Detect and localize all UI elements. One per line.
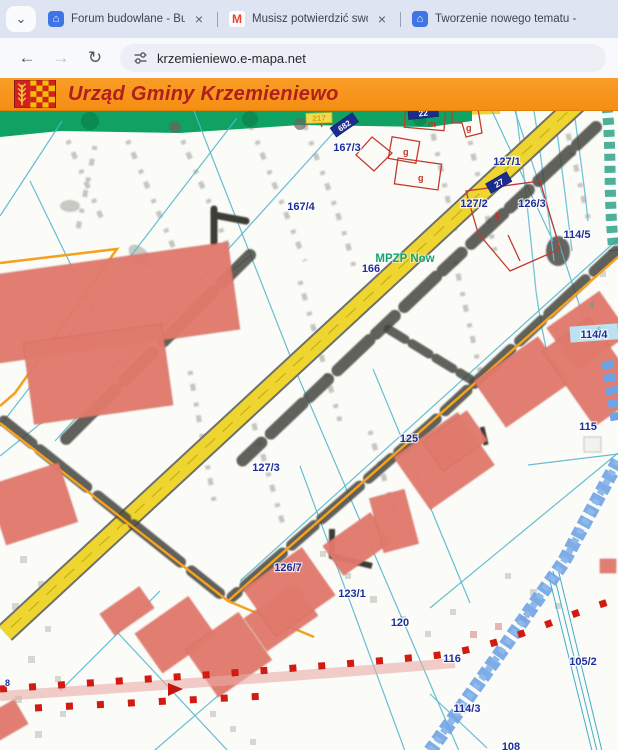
tab-label: Tworzenie nowego tematu -	[435, 13, 612, 25]
parcel-label-114-3: 114/3	[454, 703, 481, 715]
building-letter-m: m	[428, 119, 436, 129]
parcel-label-115: 115	[579, 421, 597, 433]
tab-label: Forum budowlane - Budujemy Dom	[71, 13, 185, 25]
forward-button[interactable]: →	[46, 43, 76, 73]
address-bar[interactable]: krzemieniewo.e-mapa.net	[120, 44, 606, 72]
tree-row-strip	[607, 111, 614, 251]
parcel-label-127-1: 127/1	[493, 156, 521, 168]
home-icon: ⌂	[412, 11, 428, 27]
home-icon: ⌂	[48, 11, 64, 27]
parcel-label-114-5: 114/5	[564, 229, 591, 241]
parcel-label-127-2: 127/2	[460, 198, 488, 210]
cadastral-map[interactable]: m g g g k 22 682 27 217	[0, 111, 618, 750]
tab-gmail-confirm[interactable]: M Musisz potwierdzić swoje konto ×	[223, 0, 395, 38]
tab-label: Musisz potwierdzić swoje konto	[252, 13, 368, 25]
tab-divider	[217, 12, 218, 27]
site-settings-tune-icon[interactable]	[133, 51, 148, 65]
mpzp-plan-label: MPZP Now	[375, 253, 434, 265]
url-text: krzemieniewo.e-mapa.net	[157, 51, 306, 66]
parcel-label-126-3: 126/3	[518, 198, 546, 210]
tab-forum-budowlane[interactable]: ⌂ Forum budowlane - Budujemy Dom ×	[42, 0, 212, 38]
parcel-label-105-2: 105/2	[569, 656, 597, 668]
address-plate-22: 22	[418, 111, 429, 118]
tab-new-topic[interactable]: ⌂ Tworzenie nowego tematu -	[406, 0, 618, 38]
tab-divider	[400, 12, 401, 27]
gmina-coat-of-arms	[13, 80, 57, 108]
road-number-label: 217	[312, 114, 326, 123]
parcel-label-167-4: 167/4	[287, 201, 315, 213]
parcel-label-120: 120	[391, 617, 409, 629]
parcel-label-114-4: 114/4	[581, 329, 609, 341]
map-viewport[interactable]: m g g g k 22 682 27 217	[0, 111, 618, 750]
parcel-label-167-3: 167/3	[333, 142, 361, 154]
close-icon[interactable]: ×	[192, 11, 206, 27]
parcel-label-116: 116	[443, 653, 461, 665]
reload-button[interactable]: ↻	[80, 43, 110, 73]
site-banner: Urząd Gminy Krzemieniewo	[0, 78, 618, 111]
white-building	[584, 437, 601, 452]
parcel-label-108: 108	[502, 741, 520, 750]
parcel-label-123-1: 123/1	[338, 588, 366, 600]
utility-letter-s: s	[597, 325, 601, 334]
building-letter-g: g	[466, 123, 472, 133]
utility-letter-s: s	[590, 300, 594, 309]
browser-toolbar: ← → ↻ krzemieniewo.e-mapa.net	[0, 38, 618, 78]
building-letter-g: g	[418, 173, 424, 183]
gmail-icon: M	[229, 11, 245, 27]
tab-search-button[interactable]: ⌄	[6, 6, 36, 32]
building-letter-g: g	[403, 147, 409, 157]
chevron-down-icon: ⌄	[16, 11, 27, 27]
parcel-label-125: 125	[400, 433, 418, 445]
forward-arrow-icon: →	[53, 48, 70, 68]
parcel-label-126-7: 126/7	[274, 562, 302, 574]
page-title: Urząd Gminy Krzemieniewo	[68, 83, 339, 106]
parcel-label-127-3: 127/3	[252, 462, 280, 474]
parcel-label-8: 8	[5, 678, 10, 688]
browser-tab-strip: ⌄ ⌂ Forum budowlane - Budujemy Dom × M M…	[0, 0, 618, 38]
reload-icon: ↻	[88, 48, 102, 68]
back-arrow-icon: ←	[19, 48, 36, 68]
back-button[interactable]: ←	[12, 43, 42, 73]
close-icon[interactable]: ×	[375, 11, 389, 27]
